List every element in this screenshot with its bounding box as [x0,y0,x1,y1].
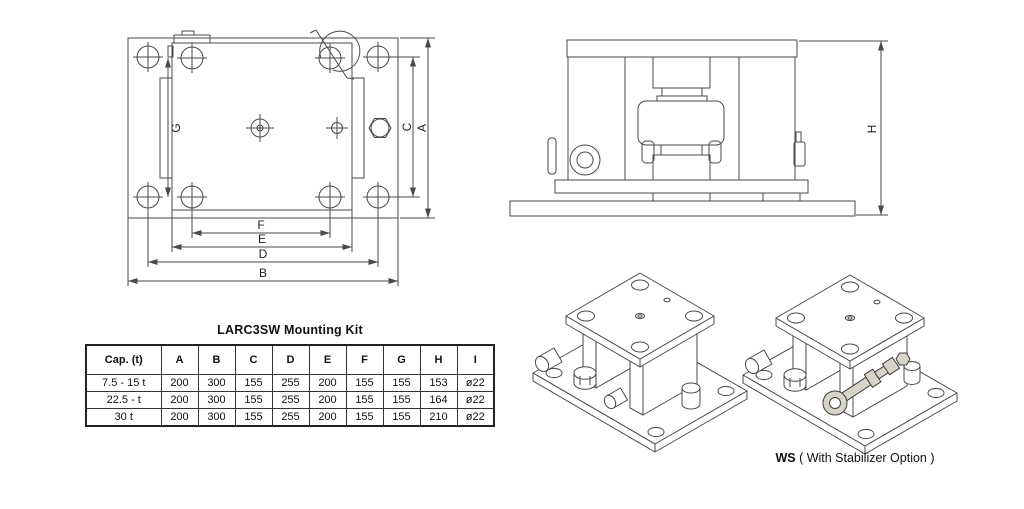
table-cell: 300 [198,409,235,427]
dim-label-C: C [400,122,414,131]
table-cell: 300 [198,375,235,392]
foot-center [653,193,710,201]
table-cell: 200 [309,392,346,409]
table-cell: 200 [309,375,346,392]
dimension-lines [128,38,428,281]
top-clamp-tab [168,31,210,57]
side-view-drawing: H [495,20,895,230]
load-cell [638,57,724,180]
iso-spacer-cylinder [682,383,700,409]
col-header-a: A [161,345,198,375]
col-header-i: I [457,345,494,375]
dim-label-H: H [865,125,879,134]
center-hole [246,114,274,142]
iso-hex-bolt [784,369,806,392]
table-cell: 155 [235,375,272,392]
table-row: 22.5 - t 200 300 155 255 200 155 155 164… [86,392,494,409]
col-header-f: F [346,345,383,375]
table-cell: 200 [161,392,198,409]
table-cell: 155 [346,375,383,392]
col-header-b: B [198,345,235,375]
iso-view-stabilizer [715,262,995,472]
side-middle-plate [555,180,808,193]
dim-label-F: F [257,218,264,232]
col-header-c: C [235,345,272,375]
dim-label-G: G [169,123,183,132]
table-cell: 155 [346,409,383,427]
side-top-plate [567,40,797,57]
table-row: 7.5 - 15 t 200 300 155 255 200 155 155 1… [86,375,494,392]
col-header-g: G [383,345,420,375]
table-cell: 200 [161,375,198,392]
foot-right [763,193,800,201]
table-cell: 155 [383,409,420,427]
table-title: LARC3SW Mounting Kit [85,323,495,337]
table-cell: 164 [420,392,457,409]
side-base-plate [510,201,855,216]
cable-gland [548,138,600,175]
table-cell: 300 [198,392,235,409]
ws-caption-text: ( With Stabilizer Option ) [796,451,935,465]
table-cell: 200 [309,409,346,427]
table-cell: ø22 [457,409,494,427]
datasheet-canvas: A C G F E D B [0,0,1024,509]
table-cell: 22.5 - t [86,392,161,409]
header-row: Cap. (t) A B C D E F G H I [86,345,494,375]
table-cell: 155 [235,392,272,409]
right-side-bar [352,78,364,178]
table-cell: 155 [383,375,420,392]
table-cell: 30 t [86,409,161,427]
iso-hex-bolt [574,367,596,390]
col-header-cap: Cap. (t) [86,345,161,375]
dim-label-E: E [258,232,266,246]
table-row: 30 t 200 300 155 255 200 155 155 210 ø22 [86,409,494,427]
mounting-kit-table: Cap. (t) A B C D E F G H I 7.5 - 15 t 20… [85,344,495,427]
dim-label-D: D [259,247,268,261]
extension-lines [128,38,435,286]
table-cell: 155 [346,392,383,409]
table-cell: 255 [272,409,309,427]
col-header-h: H [420,345,457,375]
side-right-bracket [794,132,805,166]
mounting-kit-table-section: LARC3SW Mounting Kit Cap. (t) A B C D E … [85,323,495,427]
table-cell: 7.5 - 15 t [86,375,161,392]
small-hole [326,117,348,139]
ws-caption-bold: WS [775,451,795,465]
table-cell: 153 [420,375,457,392]
table-cell: 155 [235,409,272,427]
left-column [568,57,625,180]
table-cell: ø22 [457,392,494,409]
table-cell: 255 [272,392,309,409]
dim-label-A: A [415,124,429,132]
table-cell: 200 [161,409,198,427]
right-column [739,57,795,180]
dim-label-B: B [259,266,267,280]
top-view-drawing: A C G F E D B [110,5,450,305]
table-cell: 255 [272,375,309,392]
col-header-d: D [272,345,309,375]
col-header-e: E [309,345,346,375]
ws-caption: WS ( With Stabilizer Option ) [715,451,995,465]
table-cell: 210 [420,409,457,427]
table-cell: 155 [383,392,420,409]
hex-bolt [369,119,391,138]
stabilizer-bolt-head [896,353,910,365]
table-cell: ø22 [457,375,494,392]
